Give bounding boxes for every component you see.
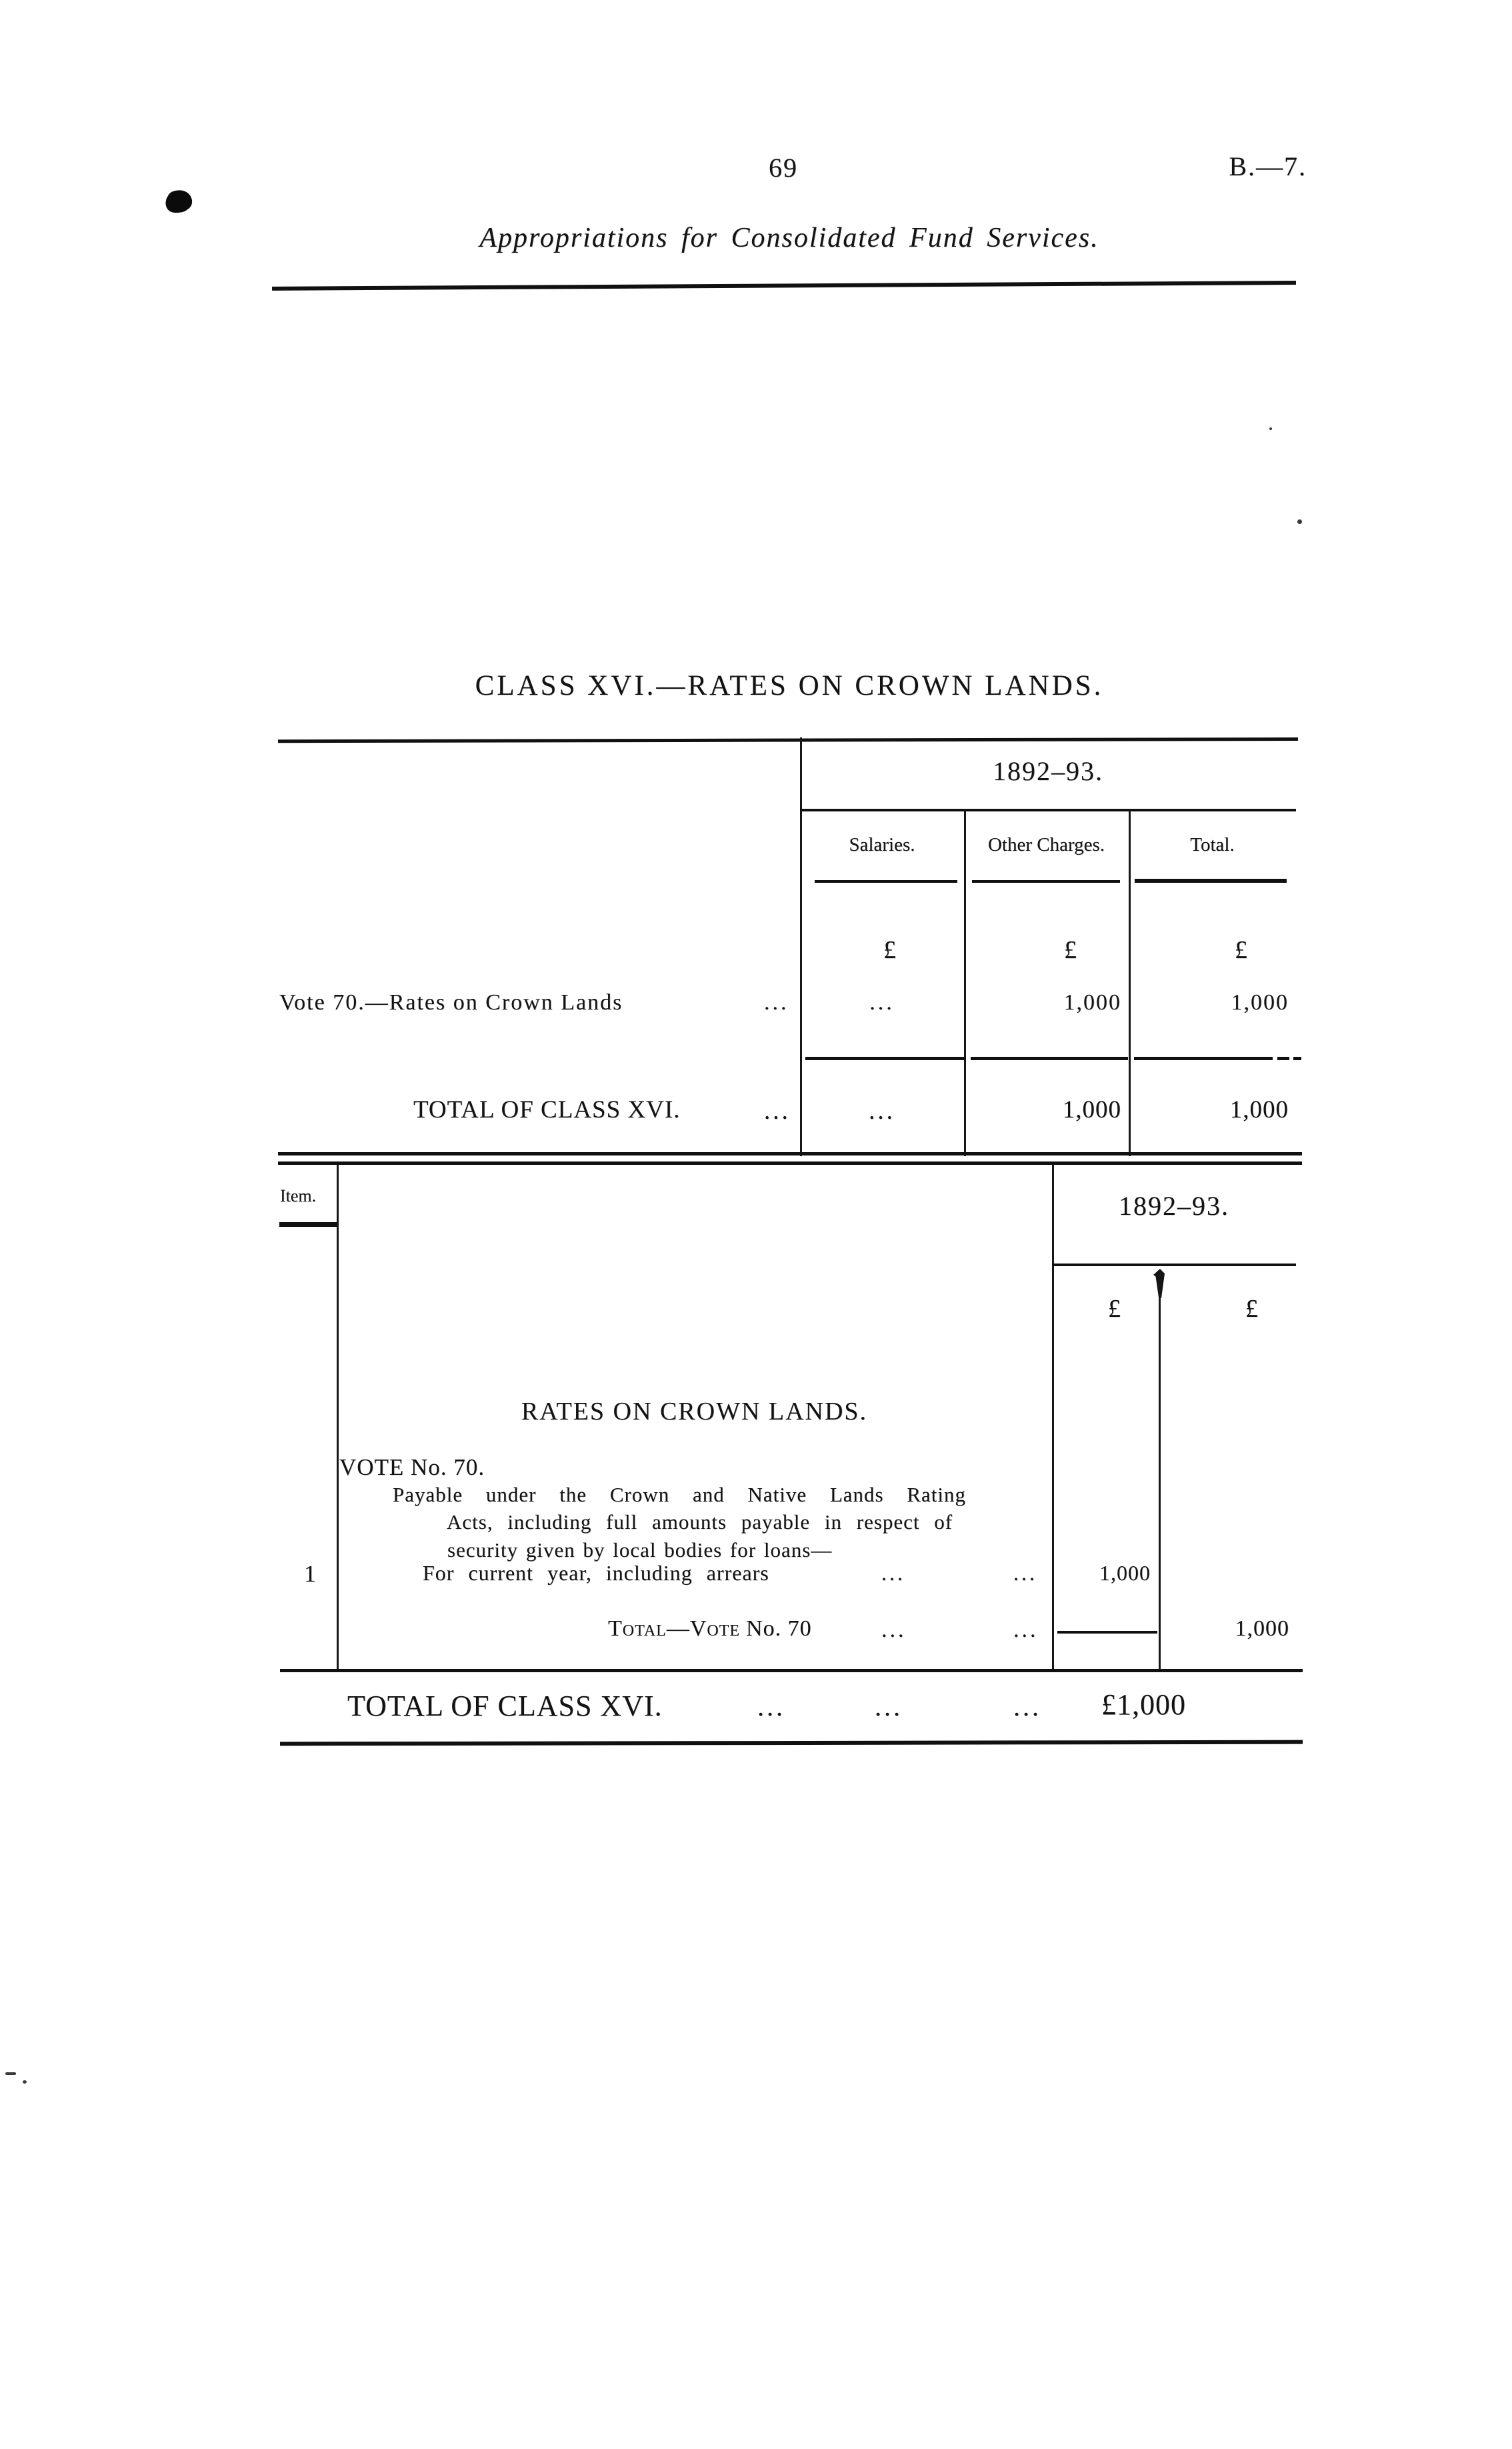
summary-col-underline-total (1135, 879, 1287, 883)
detail-vote-total-amount: 1,000 (1159, 1618, 1289, 1640)
summary-row-total-other-charges: 1,000 (964, 1097, 1121, 1122)
detail-pound-current: £ (1108, 1296, 1121, 1322)
grand-total-leader-3: ... (1013, 1694, 1041, 1720)
summary-row-total-salaries: ... (800, 1099, 964, 1123)
summary-table-stub-divider (800, 737, 802, 1156)
grand-total-leader-2: ... (875, 1694, 903, 1720)
grand-total-label: TOTAL OF CLASS XVI. (347, 1692, 663, 1721)
detail-description-line1: Payable under the Crown and Native Lands… (393, 1484, 966, 1505)
detail-group-heading: RATES ON CROWN LANDS. (337, 1399, 1052, 1424)
summary-mid-rule-segment (805, 1057, 965, 1060)
scan-speck (1269, 427, 1272, 430)
summary-row-vote70-label: Vote 70.—Rates on Crown Lands (279, 991, 623, 1014)
grand-total-leader-1: ... (757, 1694, 785, 1720)
header-rule (272, 281, 1296, 291)
grand-total-amount: £1,000 (1101, 1690, 1186, 1720)
detail-vote-total-label: Total—VoteNo. 70 (608, 1618, 812, 1640)
detail-money-subdivider (1159, 1272, 1161, 1670)
detail-description-line2: Acts, including full amounts payable in … (447, 1512, 953, 1532)
summary-pound-total: £ (1235, 937, 1247, 963)
detail-vote-total-label-rest: No. 70 (746, 1616, 812, 1641)
detail-year-header: 1892–93. (1052, 1193, 1296, 1219)
detail-item-label: For current year, including arrears (423, 1562, 769, 1584)
summary-bottom-rule-upper (278, 1152, 1302, 1155)
detail-vote-total-dash-rule (1057, 1631, 1157, 1634)
running-title: Appropriations for Consolidated Fund Ser… (289, 224, 1289, 252)
detail-money-divider (1052, 1165, 1054, 1670)
detail-item-number: 1 (304, 1562, 317, 1586)
summary-row-vote70-other-charges: 1,000 (964, 991, 1121, 1014)
summary-bottom-rule-lower (278, 1161, 1302, 1165)
summary-row-total-total: 1,000 (1129, 1097, 1289, 1122)
summary-col-header-salaries: Salaries. (800, 835, 964, 855)
summary-row-vote70-leader: ... (764, 991, 789, 1014)
detail-item-leader-1: ... (881, 1562, 905, 1584)
summary-col-header-other-charges: Other Charges. (964, 835, 1129, 855)
detail-description-line3: security given by local bodies for loans… (447, 1540, 832, 1560)
summary-row-vote70-salaries: ... (800, 991, 964, 1014)
detail-vote-total-leader-2: ... (1013, 1619, 1039, 1642)
document-page: 69 B.—7. Appropriations for Consolidated… (0, 0, 1512, 2449)
summary-row-total-label: TOTAL OF CLASS XVI. (413, 1097, 680, 1122)
summary-row-vote70-total: 1,000 (1129, 991, 1289, 1014)
summary-year-header: 1892–93. (800, 758, 1296, 785)
detail-year-rule (1052, 1264, 1296, 1266)
detail-item-header: Item. (280, 1187, 316, 1205)
summary-table-top-rule (278, 737, 1298, 743)
summary-pound-other-charges: £ (1064, 937, 1077, 963)
summary-year-rule (800, 809, 1296, 811)
summary-mid-rule-segment (1134, 1057, 1273, 1060)
summary-mid-rule-dash (1293, 1057, 1301, 1060)
summary-col-header-total: Total. (1129, 835, 1296, 855)
ink-blot-icon (165, 189, 193, 215)
summary-row-total-leader: ... (764, 1099, 791, 1123)
page-number: 69 (700, 155, 867, 181)
scan-speck (1297, 519, 1302, 524)
detail-item-header-underline (279, 1222, 337, 1227)
summary-col-underline-other-charges (972, 880, 1120, 883)
final-rule (280, 1740, 1303, 1746)
summary-pound-salaries: £ (883, 937, 896, 963)
scan-speck (23, 2080, 27, 2084)
summary-col-underline-salaries (815, 880, 957, 883)
scan-speck (5, 2072, 16, 2075)
detail-vote-total-leader-1: ... (881, 1619, 907, 1642)
summary-mid-rule-segment (971, 1057, 1128, 1060)
class-heading: CLASS XVI.—RATES ON CROWN LANDS. (289, 671, 1289, 700)
detail-item-leader-2: ... (1013, 1562, 1037, 1584)
detail-pound-total: £ (1245, 1296, 1258, 1322)
document-reference: B.—7. (1140, 153, 1307, 180)
detail-item-amount: 1,000 (1052, 1562, 1151, 1584)
detail-bottom-rule (280, 1669, 1303, 1672)
detail-vote-total-label-smallcaps: Total—Vote (608, 1616, 740, 1641)
summary-mid-rule-dash (1277, 1057, 1289, 1060)
detail-vote-heading: VOTE No. 70. (339, 1456, 485, 1479)
